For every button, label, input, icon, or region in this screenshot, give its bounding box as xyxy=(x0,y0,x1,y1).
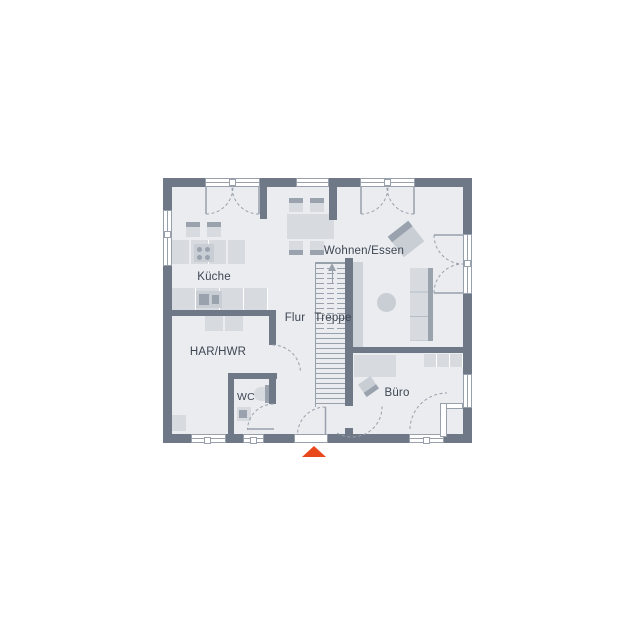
room-label-buero: Büro xyxy=(384,387,409,399)
room-label-wc: WC xyxy=(237,391,255,403)
front-door-opening xyxy=(294,434,328,443)
floorplan-canvas: Küche Wohnen/Essen Flur Treppe HAR/HWR W… xyxy=(0,0,636,636)
window-symbol-square xyxy=(384,179,391,186)
window-left xyxy=(163,210,172,266)
room-label-wohnen-essen: Wohnen/Essen xyxy=(324,245,404,257)
window-symbol-square xyxy=(423,437,430,444)
room-label-kueche: Küche xyxy=(197,271,231,283)
room-label-flur: Flur xyxy=(285,312,306,324)
window-top-center xyxy=(296,178,329,187)
window-symbol-square xyxy=(204,437,211,444)
exterior-wall xyxy=(163,178,472,443)
entrance-marker xyxy=(302,446,326,457)
window-right-buero xyxy=(463,374,472,408)
window-symbol-square xyxy=(464,260,471,267)
window-symbol-square xyxy=(250,437,257,444)
window-symbol-square xyxy=(164,231,171,238)
window-symbol-square xyxy=(229,179,236,186)
room-label-har-hwr: HAR/HWR xyxy=(190,346,246,358)
room-label-treppe: Treppe xyxy=(314,312,351,324)
floorplan: Küche Wohnen/Essen Flur Treppe HAR/HWR W… xyxy=(0,0,636,636)
